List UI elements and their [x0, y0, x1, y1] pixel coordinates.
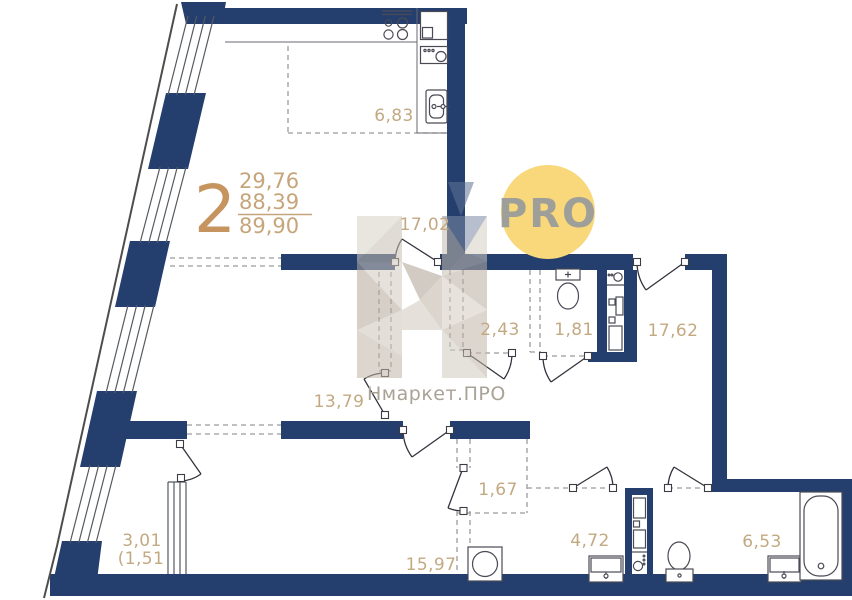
toilet-icon [556, 269, 580, 309]
label-bathroom-big: 6,53 [742, 532, 781, 552]
facade-outline [44, 4, 177, 598]
toilet-icon-2 [666, 542, 693, 582]
bathtub-icon [800, 492, 842, 580]
label-living: 13,79 [314, 392, 365, 412]
label-kitchen-living: 17,02 [400, 215, 451, 235]
sink-icon [589, 556, 623, 582]
fridge-icon [421, 12, 448, 40]
label-wardrobe: 2,43 [480, 320, 519, 340]
floor-plan: Нмаркет.ПРО PRO 2 29,76 88,39 89,90 6,83… [0, 0, 852, 600]
water-heater-icon [607, 273, 624, 350]
label-balcony-coeff: (1,51 [118, 549, 164, 569]
unit-area-total: 89,90 [239, 214, 299, 238]
sink-icon-2 [768, 556, 801, 582]
unit-area-no-balcony: 88,39 [239, 190, 299, 214]
unit-info: 2 29,76 88,39 89,90 [194, 169, 312, 248]
label-closet: 1,67 [478, 480, 517, 500]
label-bedroom: 15,97 [406, 555, 457, 575]
label-kitchen-zone: 6,83 [374, 106, 413, 126]
watermark-brand-text: Нмаркет.ПРО [367, 383, 506, 405]
label-bathroom: 4,72 [570, 531, 609, 551]
label-balcony: 3,01 [122, 531, 161, 551]
pro-badge: PRO [498, 165, 598, 259]
pro-badge-text: PRO [498, 191, 598, 237]
floor-plan-page: Нмаркет.ПРО PRO 2 29,76 88,39 89,90 6,83… [0, 0, 852, 600]
label-wc: 1,81 [554, 320, 593, 340]
dishwasher-icon [421, 47, 448, 64]
washing-machine-icon [468, 547, 502, 581]
watermark-logo [357, 182, 487, 378]
shelving-icon [632, 498, 647, 571]
unit-rooms-count: 2 [194, 171, 236, 248]
kitchen-sink-icon [426, 90, 449, 123]
label-hallway: 17,62 [648, 321, 699, 341]
